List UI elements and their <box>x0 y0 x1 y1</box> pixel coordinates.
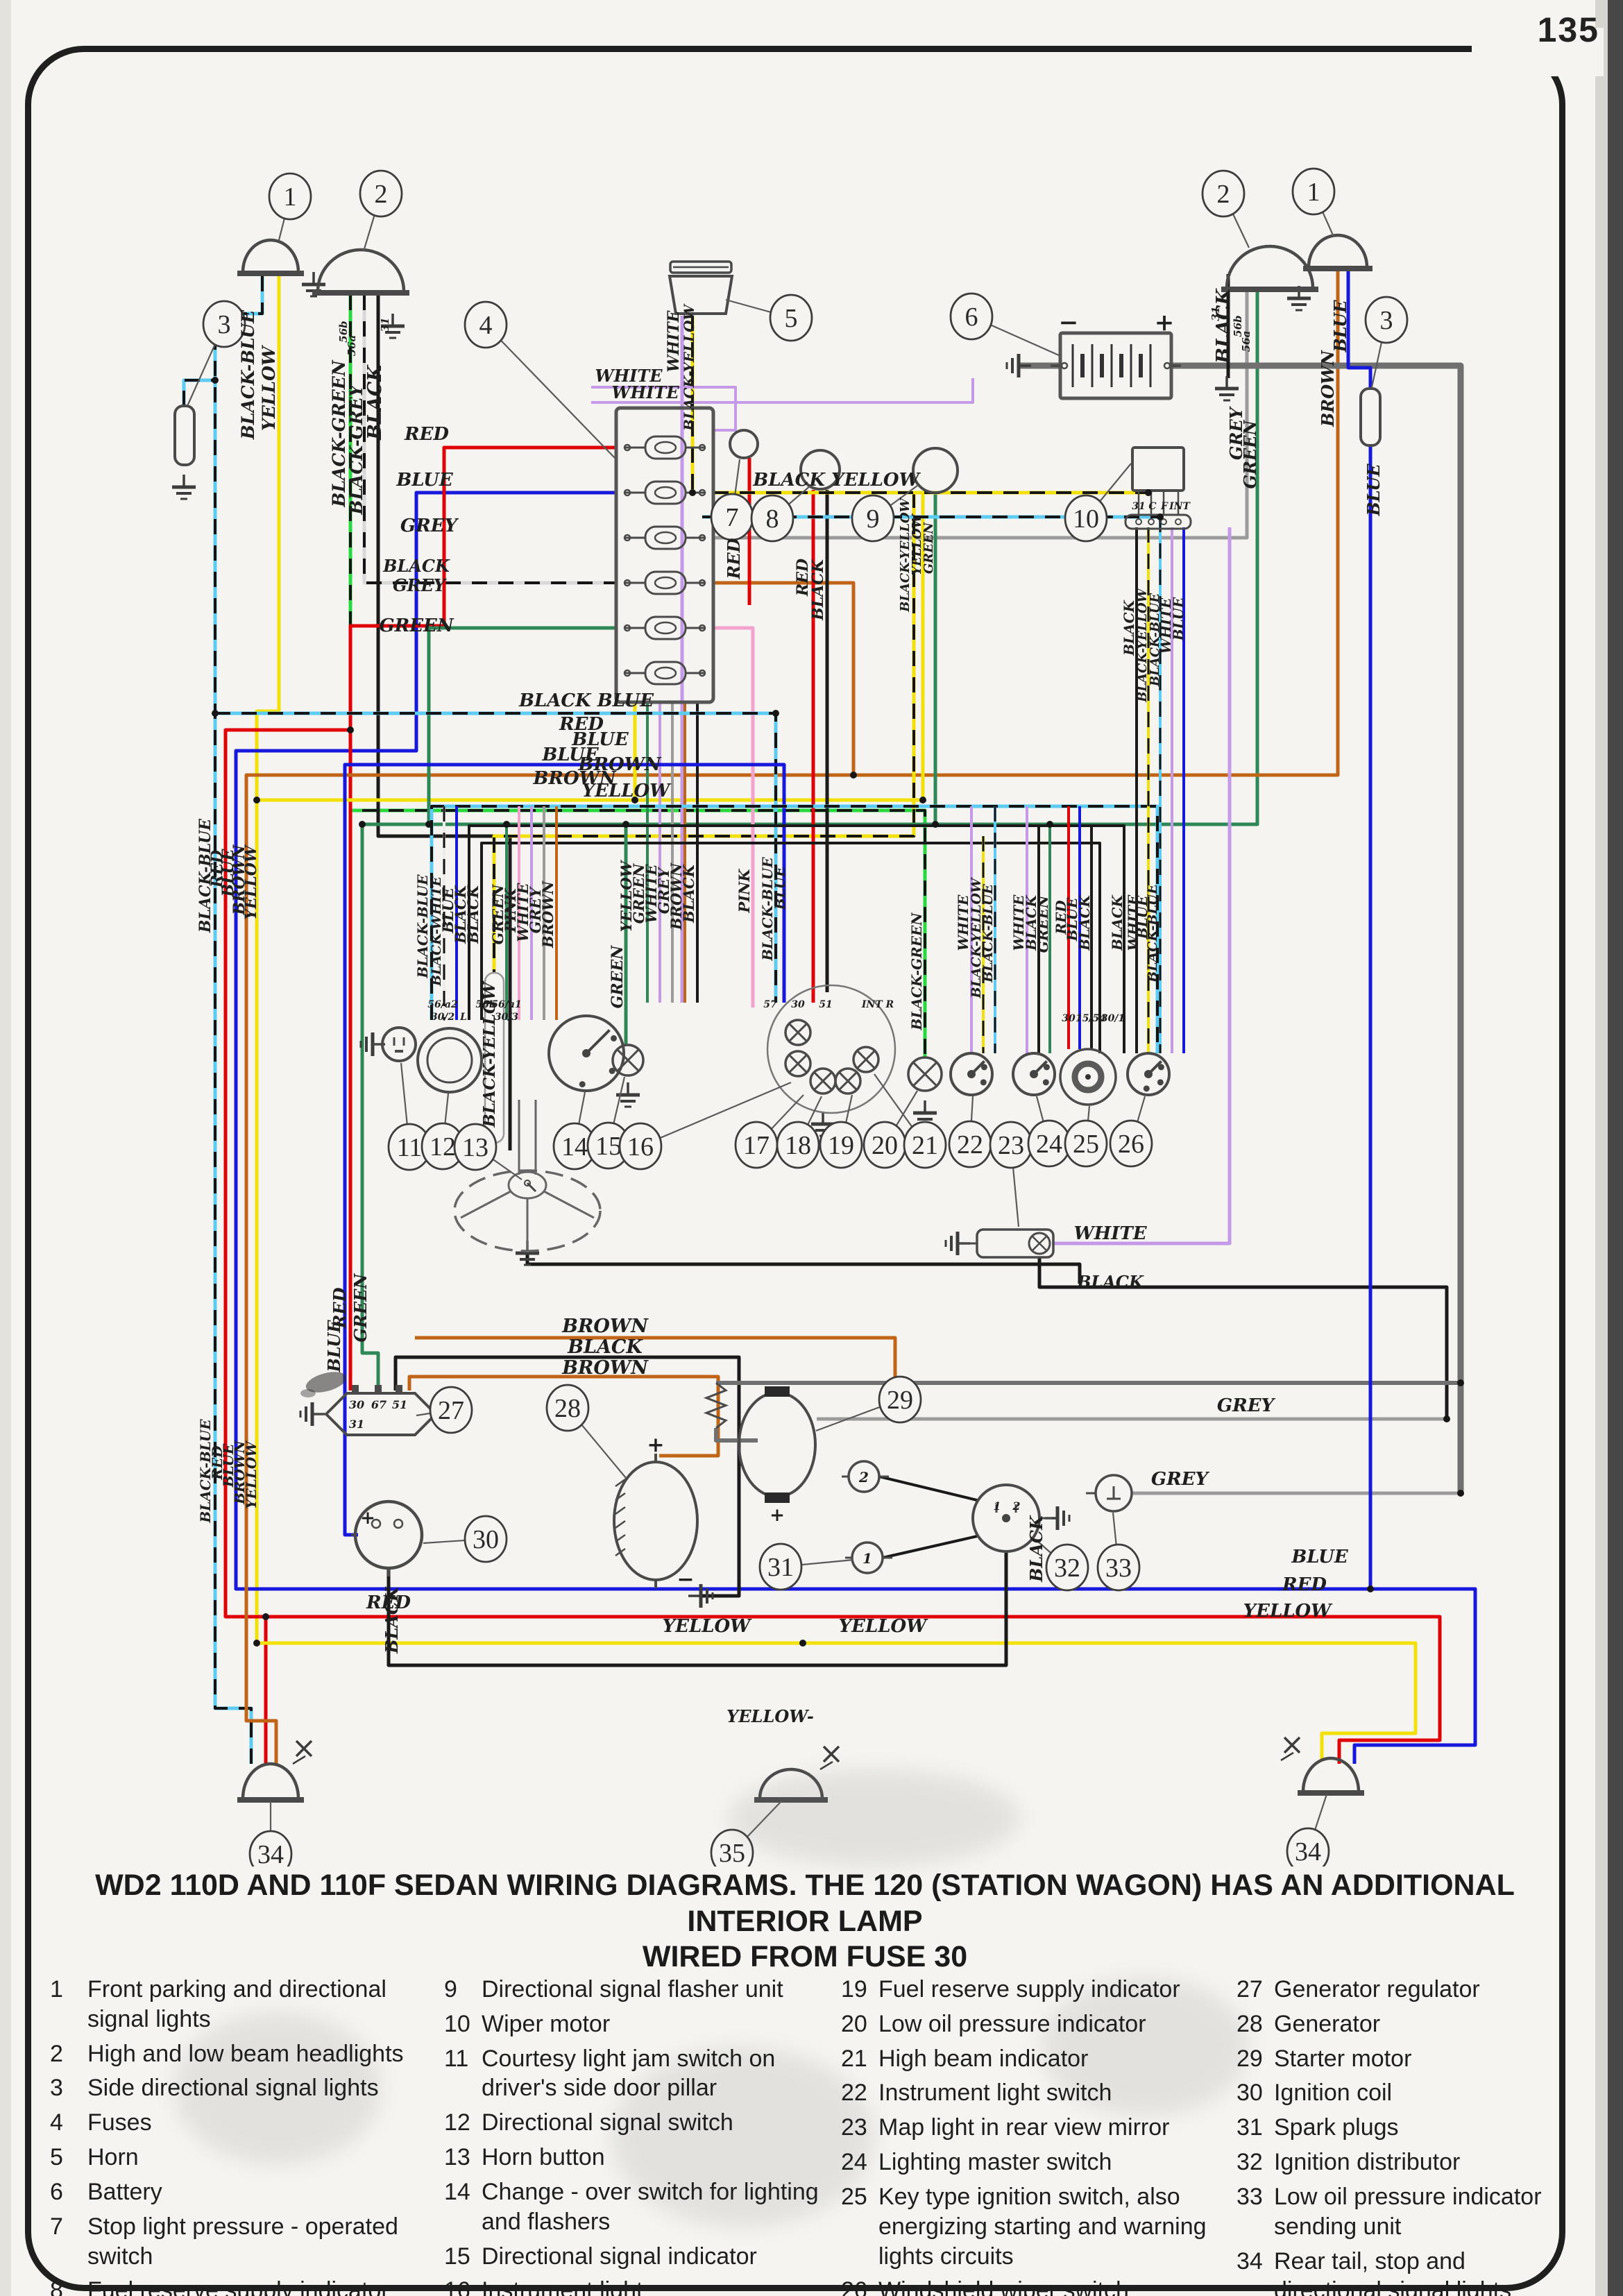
svg-text:29: 29 <box>887 1386 913 1415</box>
ground-x-mark <box>293 1741 312 1764</box>
legend-item-32: 32Ignition distributor <box>1237 2148 1563 2177</box>
legend-item-7: 7Stop light pressure - operated switch <box>50 2212 419 2272</box>
component-bulb <box>810 1069 835 1094</box>
legend-item-text: Change - over switch for lighting and fl… <box>482 2177 824 2237</box>
legend-item-2: 2High and low beam headlights <box>50 2039 419 2069</box>
wire-label: 57 <box>763 999 777 1010</box>
legend-item-number: 21 <box>841 2044 878 2074</box>
wire-label: BROWN <box>561 1357 649 1379</box>
svg-text:14: 14 <box>561 1132 588 1162</box>
legend-item-text: Starter motor <box>1274 2044 1411 2074</box>
legend-item-number: 2 <box>50 2039 87 2069</box>
legend-item-3: 3Side directional signal lights <box>50 2073 419 2103</box>
svg-text:30: 30 <box>473 1525 499 1554</box>
legend-item-15: 15Directional signal indicator <box>444 2242 824 2272</box>
wire-junction <box>503 821 510 828</box>
legend-item-text: High beam indicator <box>878 2044 1088 2074</box>
wire-label: GREEN <box>350 1273 371 1342</box>
component-horn <box>670 262 732 314</box>
wire-junction <box>689 489 696 496</box>
legend-item-number: 16 <box>444 2276 482 2296</box>
legend-item-number: 6 <box>50 2177 87 2207</box>
legend-item-text: Low oil pressure indicator sending unit <box>1274 2182 1563 2242</box>
wire-label: 30/1 <box>1101 1013 1125 1024</box>
legend-item-number: 23 <box>841 2113 878 2143</box>
legend-item-text: Front parking and directional signal lig… <box>87 1975 419 2034</box>
wire-label: + <box>1155 309 1175 337</box>
legend-item-number: 13 <box>444 2143 482 2172</box>
wire-junction <box>1367 1585 1374 1592</box>
ground-x-mark <box>820 1746 839 1769</box>
legend-item-text: Side directional signal lights <box>87 2073 379 2103</box>
svg-text:1: 1 <box>1307 178 1320 207</box>
wire-label: GREEN <box>379 615 454 636</box>
wire-bk <box>527 1251 1080 1284</box>
legend-item-text: Wiper motor <box>482 2009 610 2039</box>
component-circ <box>730 430 758 458</box>
wire-label: 2 <box>1012 1499 1020 1513</box>
wire-gn <box>935 291 1257 824</box>
callout-30: 30 <box>423 1516 507 1562</box>
wire-label: BLACK <box>1026 1515 1046 1583</box>
legend-column-2: 9Directional signal flasher unit10Wiper … <box>444 1975 824 2296</box>
callout-1: 1 <box>1293 169 1334 237</box>
wire-label: BLACK <box>382 556 450 576</box>
wire-label: GREY <box>1217 1395 1276 1416</box>
callout-18: 18 <box>777 1096 822 1168</box>
wire-junction <box>359 821 366 828</box>
legend-item-number: 33 <box>1237 2182 1274 2242</box>
wire-label: 56a <box>346 335 358 357</box>
legend-item-29: 29Starter motor <box>1237 2044 1563 2074</box>
wire-label: BLUE <box>396 470 454 491</box>
wire-pk <box>713 628 753 1007</box>
wire-label: BLACK-BLUE <box>238 309 258 440</box>
wire-yl <box>257 1643 1416 1761</box>
title-line1: WD2 110D AND 110F SEDAN WIRING DIAGRAMS.… <box>95 1869 1515 1938</box>
svg-text:17: 17 <box>743 1131 770 1160</box>
svg-text:16: 16 <box>627 1132 654 1162</box>
wire-junction <box>347 726 354 733</box>
wire-label: BLACK-GREEN <box>908 912 925 1031</box>
legend-item-number: 9 <box>444 1975 482 2005</box>
svg-text:20: 20 <box>872 1131 898 1160</box>
wire-label: BLACK <box>809 559 827 621</box>
wire-label: 30 <box>791 999 805 1010</box>
wire-label: YELLOW <box>663 1616 753 1637</box>
svg-text:13: 13 <box>462 1133 488 1162</box>
wiring-diagram: 1 2 3 4 5 6 7 8 9 10 2 1 3 <box>0 0 1623 1866</box>
wire-label: BLACK BLUE <box>518 690 654 711</box>
ground-symbol <box>1007 354 1031 377</box>
wire-junction <box>622 821 629 828</box>
component-sw <box>549 1016 624 1091</box>
legend-item-5: 5Horn <box>50 2143 419 2172</box>
wire-junction <box>425 821 432 828</box>
wire-label: YELLOW <box>582 781 672 801</box>
svg-text:21: 21 <box>912 1131 938 1160</box>
wire-junction <box>253 1640 260 1647</box>
wire-label: BLACK-GREY <box>346 383 366 515</box>
legend-item-number: 12 <box>444 2108 482 2138</box>
wire-junction <box>212 710 219 717</box>
wire-label: 51 <box>392 1398 407 1411</box>
component-bulb <box>853 1047 878 1072</box>
wire-junction <box>212 377 219 384</box>
wire-label: BLUE <box>772 866 788 910</box>
legend-item-14: 14Change - over switch for lighting and … <box>444 2177 824 2237</box>
ground-x-mark <box>1281 1737 1300 1760</box>
component-oil <box>1086 1475 1132 1511</box>
component-zig <box>706 1383 726 1428</box>
legend-item-20: 20Low oil pressure indicator <box>841 2009 1221 2039</box>
svg-text:27: 27 <box>438 1396 464 1425</box>
legend-item-30: 30Ignition coil <box>1237 2078 1563 2108</box>
wire-rd <box>350 448 616 1391</box>
wire-bk <box>883 1536 977 1558</box>
callout-24: 24 <box>1028 1096 1070 1166</box>
wire-junction <box>772 710 779 717</box>
legend-item-text: Ignition distributor <box>1274 2148 1460 2177</box>
wire-junction <box>932 821 939 828</box>
svg-text:31: 31 <box>767 1553 794 1582</box>
svg-text:24: 24 <box>1036 1130 1062 1159</box>
legend-item-34: 34Rear tail, stop and directional signal… <box>1237 2247 1563 2296</box>
legend-item-text: Directional signal flasher unit <box>482 1975 783 2005</box>
component-circ2 <box>418 1028 482 1092</box>
component-starter <box>739 1386 815 1503</box>
callout-10: 10 <box>1065 464 1131 541</box>
wire-label: BROWN <box>1318 350 1338 427</box>
legend-item-text: Generator <box>1274 2009 1380 2039</box>
svg-text:1: 1 <box>284 182 297 212</box>
wire-label: C <box>1148 501 1156 512</box>
wire-label: 31 <box>349 1418 364 1431</box>
wire-junction <box>1046 821 1053 828</box>
wire-label: BLACK <box>464 885 482 944</box>
wire-label: BROWN <box>539 881 556 949</box>
legend-item-12: 12Directional signal switch <box>444 2108 824 2138</box>
wire-label: − <box>1059 309 1079 337</box>
component-fusebox <box>616 408 713 702</box>
wire-label: L <box>459 1012 467 1023</box>
wire-label: RED <box>724 538 744 579</box>
legend-item-13: 13Horn button <box>444 2143 824 2172</box>
svg-text:10: 10 <box>1073 504 1099 534</box>
wire-label: 1 <box>993 1499 1001 1513</box>
svg-text:6: 6 <box>965 303 978 332</box>
legend-item-number: 27 <box>1237 1975 1274 2005</box>
wire-label: 1 <box>863 1550 872 1567</box>
legend-item-number: 7 <box>50 2212 87 2272</box>
callout-19: 19 <box>820 1095 862 1168</box>
legend-item-text: Fuel reserve supply indicator <box>878 1975 1180 2005</box>
legend-item-19: 19Fuel reserve supply indicator <box>841 1975 1221 2005</box>
legend-item-text: Courtesy light jam switch on driver's si… <box>482 2044 824 2104</box>
legend-item-number: 24 <box>841 2148 878 2177</box>
wire-label: PINK <box>736 869 753 914</box>
legend-item-text: Horn button <box>482 2143 605 2172</box>
legend-item-6: 6Battery <box>50 2177 419 2207</box>
svg-text:15: 15 <box>595 1132 622 1161</box>
wire-label: BLUE <box>1363 464 1384 517</box>
wire-label: GREY <box>1151 1469 1210 1490</box>
wire-label: 56/a2 <box>427 999 458 1010</box>
legend-item-text: Fuel reserve supply indicator sending un… <box>87 2276 419 2296</box>
wire-junction <box>850 772 857 779</box>
wire-bk <box>389 1553 1006 1665</box>
wire-label: YELLOW <box>1243 1601 1334 1622</box>
wire-label: 30 <box>1062 1013 1076 1024</box>
legend-item-25: 25Key type ignition switch, also energiz… <box>841 2182 1221 2271</box>
wire-label: BLACK <box>1076 1272 1144 1292</box>
wire-label: + <box>647 1433 664 1457</box>
wire-label: BLACK-YELLOW <box>681 303 697 432</box>
wire-label: 30/3 <box>495 1012 519 1023</box>
legend-item-number: 26 <box>841 2276 878 2296</box>
svg-text:23: 23 <box>998 1131 1024 1160</box>
wire-label: INT <box>1169 501 1191 512</box>
wire-label: 31 <box>379 318 391 332</box>
legend-item-text: Directional signal switch <box>482 2108 733 2138</box>
legend-item-text: Instrument light switch <box>878 2078 1112 2108</box>
legend-column-1: 1Front parking and directional signal li… <box>50 1975 419 2296</box>
wire-label: BLACK-BLUE <box>1145 884 1160 983</box>
component-caps <box>175 406 194 465</box>
callout-4: 4 <box>465 302 615 458</box>
legend-item-33: 33Low oil pressure indicator sending uni… <box>1237 2182 1563 2242</box>
legend-item-text: Directional signal indicator <box>482 2242 757 2272</box>
wire-label: 30/2 <box>431 1012 455 1023</box>
legend-item-number: 11 <box>444 2044 482 2104</box>
callout-2: 2 <box>1203 171 1249 248</box>
callout-25: 25 <box>1065 1106 1107 1166</box>
wire-label: BLUE <box>1170 597 1187 641</box>
component-map <box>959 1230 1053 1257</box>
svg-text:4: 4 <box>479 311 493 340</box>
wire-label: F <box>1160 501 1169 512</box>
wire-label: BLACK <box>680 864 697 924</box>
legend-item-text: Generator regulator <box>1274 1975 1480 2005</box>
component-sw <box>951 1053 992 1095</box>
wire-label: YELLOW <box>242 844 260 920</box>
legend-item-number: 10 <box>444 2009 482 2039</box>
wire-label: 31 <box>1132 501 1145 512</box>
wire-label: BLUE <box>1330 300 1350 353</box>
wire-label: BLACK-BLUE <box>980 884 996 983</box>
svg-text:22: 22 <box>957 1130 983 1159</box>
legend-item-8: 8Fuel reserve supply indicator sending u… <box>50 2276 419 2296</box>
wire-label: YELLOW <box>259 344 279 431</box>
wire-junction <box>1443 1415 1450 1422</box>
wire-label: + <box>360 1508 375 1529</box>
component-sw <box>1128 1053 1169 1095</box>
svg-text:35: 35 <box>719 1839 745 1866</box>
component-ign <box>1060 1049 1116 1105</box>
callout-23: 23 <box>990 1122 1032 1227</box>
legend-item-number: 25 <box>841 2182 878 2271</box>
legend-item-number: 4 <box>50 2108 87 2138</box>
legend-item-number: 5 <box>50 2143 87 2172</box>
wire-junction <box>1457 1490 1464 1497</box>
wire-label: RED <box>404 424 449 445</box>
legend-item-text: Map light in rear view mirror <box>878 2113 1169 2143</box>
legend-item-31: 31Spark plugs <box>1237 2113 1563 2143</box>
svg-text:34: 34 <box>257 1840 284 1866</box>
legend-item-22: 22Instrument light switch <box>841 2078 1221 2108</box>
legend-item-text: Battery <box>87 2177 162 2207</box>
legend-item-number: 1 <box>50 1975 87 2034</box>
legend-item-text: Instrument light <box>482 2276 643 2296</box>
component-bulb <box>835 1069 860 1094</box>
svg-text:34: 34 <box>1295 1837 1321 1866</box>
callout-2: 2 <box>360 171 402 251</box>
wire-junction <box>1157 513 1164 520</box>
legend-item-number: 15 <box>444 2242 482 2272</box>
component-bulb <box>613 1045 643 1075</box>
legend-item-text: Lighting master switch <box>878 2148 1112 2177</box>
wire-bk <box>879 1477 977 1500</box>
legend-column-3: 19Fuel reserve supply indicator20Low oil… <box>841 1975 1221 2296</box>
component-dome <box>1298 1758 1364 1796</box>
callout-33: 33 <box>1098 1513 1139 1590</box>
callout-31: 31 <box>760 1544 853 1590</box>
legend-item-9: 9Directional signal flasher unit <box>444 1975 824 2005</box>
wire-label: BLACK <box>567 1336 643 1358</box>
legend-item-27: 27Generator regulator <box>1237 1975 1563 2005</box>
wire-dg <box>716 1428 758 1440</box>
svg-text:9: 9 <box>867 504 880 534</box>
component-bulb <box>908 1057 942 1091</box>
wire-label: BLACK YELLOW <box>752 470 921 491</box>
svg-text:18: 18 <box>785 1131 811 1160</box>
svg-text:26: 26 <box>1118 1130 1144 1159</box>
wire-yl <box>257 276 279 1643</box>
svg-text:5: 5 <box>785 304 798 333</box>
wire-label: 56/a1 <box>491 999 521 1010</box>
legend-item-text: Key type ignition switch, also energizin… <box>878 2182 1221 2271</box>
legend-item-number: 32 <box>1237 2148 1274 2177</box>
legend-item-21: 21High beam indicator <box>841 2044 1221 2074</box>
legend-item-11: 11Courtesy light jam switch on driver's … <box>444 2044 824 2104</box>
legend-item-10: 10Wiper motor <box>444 2009 824 2039</box>
callout-34: 34 <box>1287 1794 1329 1866</box>
wire-label: − <box>677 1567 694 1592</box>
legend-item-16: 16Instrument light <box>444 2276 824 2296</box>
wire-label: WHITE <box>611 382 679 402</box>
svg-text:2: 2 <box>375 180 388 209</box>
svg-text:11: 11 <box>397 1133 423 1162</box>
callout-1: 1 <box>269 173 311 240</box>
legend-item-24: 24Lighting master switch <box>841 2148 1221 2177</box>
legend-item-23: 23Map light in rear view mirror <box>841 2113 1221 2143</box>
callout-14: 14 <box>554 1092 595 1169</box>
wire-junction <box>1145 489 1152 496</box>
component-caps <box>1361 389 1380 445</box>
component-dome <box>237 1764 304 1803</box>
callout-28: 28 <box>547 1385 626 1478</box>
legend-item-4: 4Fuses <box>50 2108 419 2138</box>
manual-page: 135 <box>0 0 1623 2296</box>
svg-text:7: 7 <box>726 503 739 532</box>
wire-label: YELLOW <box>839 1616 929 1637</box>
legend-item-text: Windshield wiper switch <box>878 2276 1129 2296</box>
svg-text:8: 8 <box>766 504 779 534</box>
legend-item-number: 29 <box>1237 2044 1274 2074</box>
legend-item-number: 14 <box>444 2177 482 2237</box>
wire-label: BLACK <box>1109 894 1125 951</box>
legend-item-text: Low oil pressure indicator <box>878 2009 1146 2039</box>
wire-junction <box>253 797 260 803</box>
svg-text:25: 25 <box>1073 1130 1099 1159</box>
svg-text:2: 2 <box>1217 180 1230 209</box>
legend-item-number: 19 <box>841 1975 878 2005</box>
wire-junction <box>919 797 926 803</box>
wire-label: WHITE <box>1073 1223 1147 1244</box>
wire-label: BLACK <box>364 364 386 441</box>
legend-column-4: 27Generator regulator28Generator29Starte… <box>1237 1975 1563 2296</box>
legend-item-1: 1Front parking and directional signal li… <box>50 1975 419 2034</box>
ground-symbol <box>1215 376 1239 400</box>
wire-label: BLUE <box>324 1320 344 1373</box>
wire-label: RED <box>1282 1574 1327 1595</box>
component-dome <box>237 240 304 276</box>
legend-item-number: 8 <box>50 2276 87 2296</box>
legend-item-number: 3 <box>50 2073 87 2103</box>
wire-label: 67 <box>371 1398 386 1411</box>
wire-label: YELLOW <box>243 1440 260 1509</box>
legend-item-text: Fuses <box>87 2108 152 2138</box>
wire-label: GREY <box>400 516 459 536</box>
wire-label: 30 <box>349 1398 364 1411</box>
svg-text:3: 3 <box>1380 306 1393 335</box>
wire-label: BLUE <box>1291 1547 1349 1567</box>
wire-label: GREEN <box>1240 419 1260 488</box>
legend-item-text: Spark plugs <box>1274 2113 1399 2143</box>
legend-item-text: Rear tail, stop and directional signal l… <box>1274 2247 1563 2296</box>
legend-item-number: 28 <box>1237 2009 1274 2039</box>
callout-7: 7 <box>711 459 753 540</box>
svg-text:12: 12 <box>430 1132 456 1162</box>
component-battery <box>1051 333 1181 398</box>
wire-junction <box>1457 1379 1464 1386</box>
legend-item-text: Stop light pressure - operated switch <box>87 2212 419 2272</box>
wire-label: YELLOW- <box>726 1706 814 1726</box>
svg-text:19: 19 <box>828 1131 854 1160</box>
component-bulb <box>785 1020 810 1045</box>
wire-junction <box>799 1640 806 1647</box>
wire-label: GREEN <box>1035 895 1051 953</box>
callout-6: 6 <box>951 294 1059 355</box>
legend-item-26: 26Windshield wiper switch <box>841 2276 1221 2296</box>
title-line2: WIRED FROM FUSE 30 <box>643 1940 967 1973</box>
wire-label: GREY <box>393 575 448 595</box>
component-circ <box>913 448 958 493</box>
component-bulb <box>785 1051 810 1076</box>
svg-text:28: 28 <box>554 1394 581 1423</box>
wire-label: BROWN <box>561 1316 649 1337</box>
wire-label: GREEN <box>609 945 627 1009</box>
legend-item-number: 20 <box>841 2009 878 2039</box>
svg-text:32: 32 <box>1054 1554 1080 1583</box>
legend-item-number: 34 <box>1237 2247 1274 2296</box>
component-dome <box>312 250 409 296</box>
legend-item-28: 28Generator <box>1237 2009 1563 2039</box>
legend-item-number: 22 <box>841 2078 878 2108</box>
wire-label: INT R <box>861 999 894 1010</box>
callout-5: 5 <box>726 295 812 341</box>
wire-br <box>713 583 853 775</box>
